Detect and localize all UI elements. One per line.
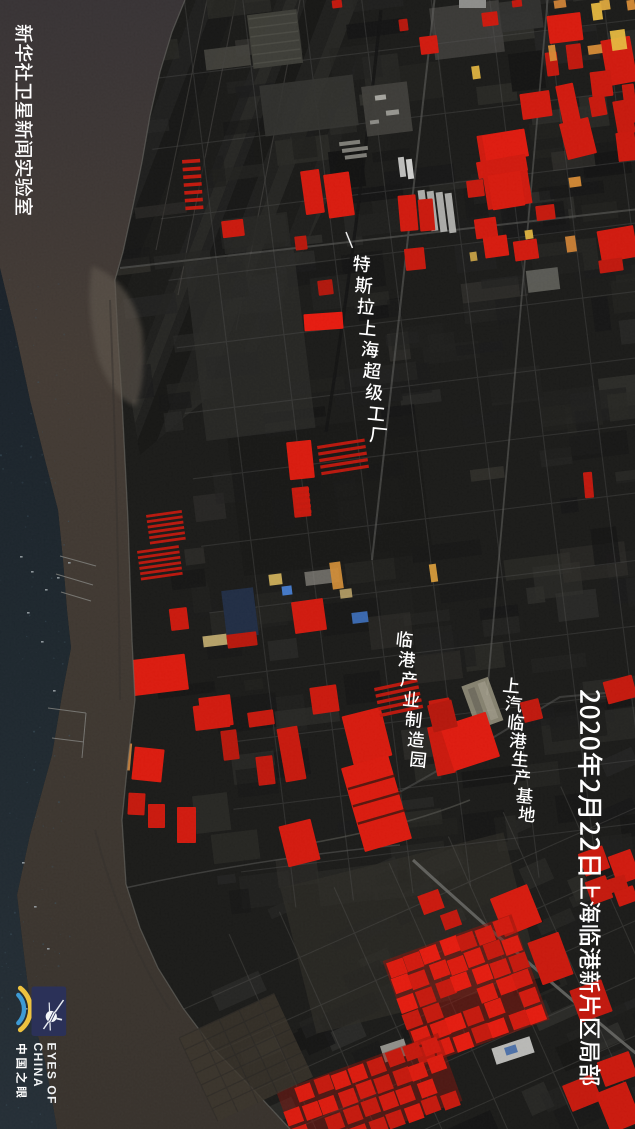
- svg-text:EYES OF: EYES OF: [45, 1043, 59, 1106]
- svg-text:CHINA: CHINA: [31, 1043, 45, 1089]
